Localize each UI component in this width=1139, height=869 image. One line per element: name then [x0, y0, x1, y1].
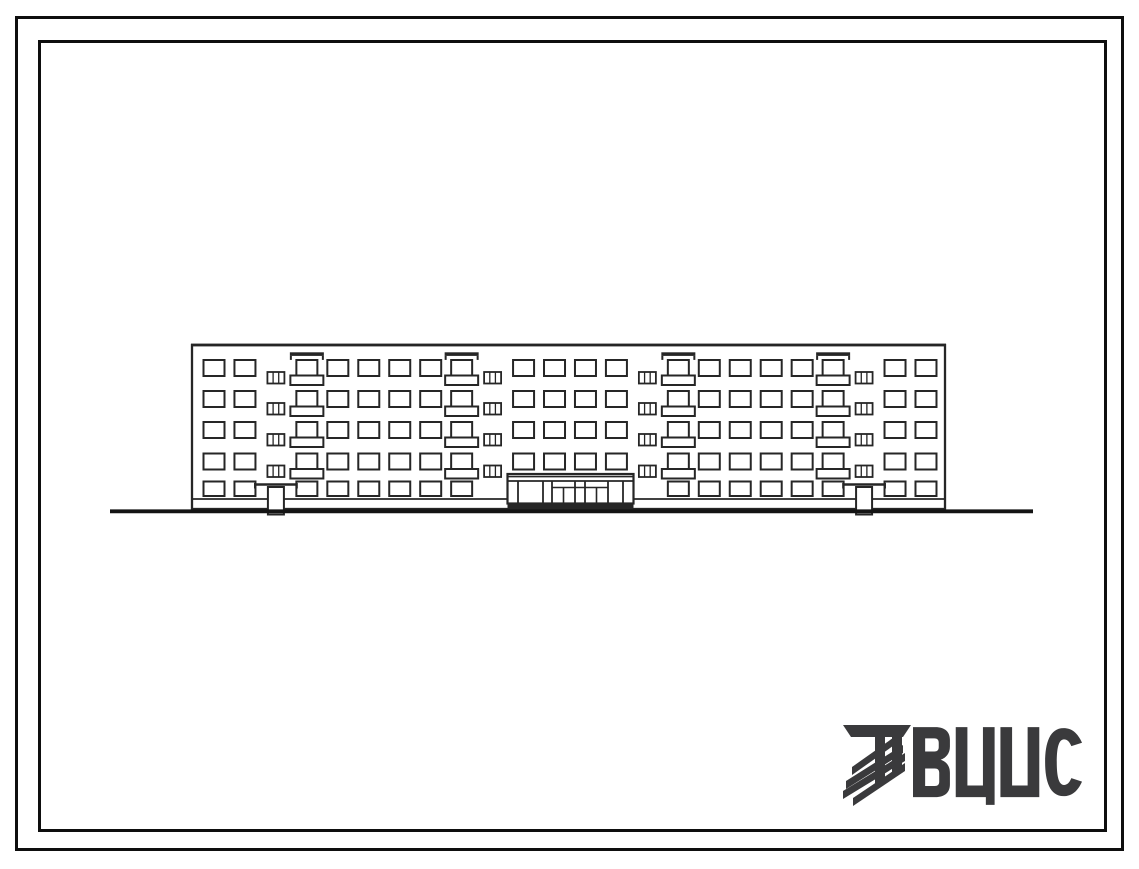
- roof-canopy-mark: [816, 352, 850, 356]
- balcony-slab: [290, 438, 323, 448]
- roof-canopy-mark: [445, 352, 479, 356]
- roof-canopy-tick: [322, 356, 324, 360]
- balcony-slab: [445, 469, 478, 479]
- balcony-slab: [817, 469, 850, 479]
- logo-letter: [1045, 728, 1082, 796]
- emblem-shape: [875, 737, 885, 787]
- balcony-slab: [662, 469, 695, 479]
- logo-emblem-icon: [833, 722, 917, 808]
- balcony-slab: [445, 407, 478, 417]
- roof-canopy-mark: [661, 352, 695, 356]
- emblem-shape: [843, 725, 911, 737]
- logo-letter: [1000, 727, 1039, 797]
- main-entrance: [508, 474, 634, 511]
- entrance-box: [508, 474, 634, 504]
- roof-canopy-tick: [816, 356, 818, 360]
- logo-text: [913, 727, 1083, 807]
- roof-canopy-mark: [290, 352, 324, 356]
- balcony-slab: [817, 407, 850, 417]
- roof-canopy-tick: [661, 356, 663, 360]
- balcony-slab: [290, 376, 323, 386]
- logo-letter: [956, 727, 995, 805]
- balcony-slab: [817, 438, 850, 448]
- balcony-slab: [290, 469, 323, 479]
- balcony-slab: [290, 407, 323, 417]
- balcony-slab: [662, 407, 695, 417]
- publisher-logo: [833, 720, 1093, 820]
- balcony-slab: [662, 438, 695, 448]
- balcony-slab: [662, 376, 695, 386]
- roof-canopy-tick: [477, 356, 479, 360]
- roof-canopy-tick: [445, 356, 447, 360]
- scanned-design-sheet: [0, 0, 1139, 869]
- roof-canopy-tick: [848, 356, 850, 360]
- logo-letter: [913, 727, 950, 797]
- roof-canopy-tick: [693, 356, 695, 360]
- roof-canopy-tick: [290, 356, 292, 360]
- balcony-slab: [445, 376, 478, 386]
- balcony-slab: [817, 376, 850, 386]
- balcony-slab: [445, 438, 478, 448]
